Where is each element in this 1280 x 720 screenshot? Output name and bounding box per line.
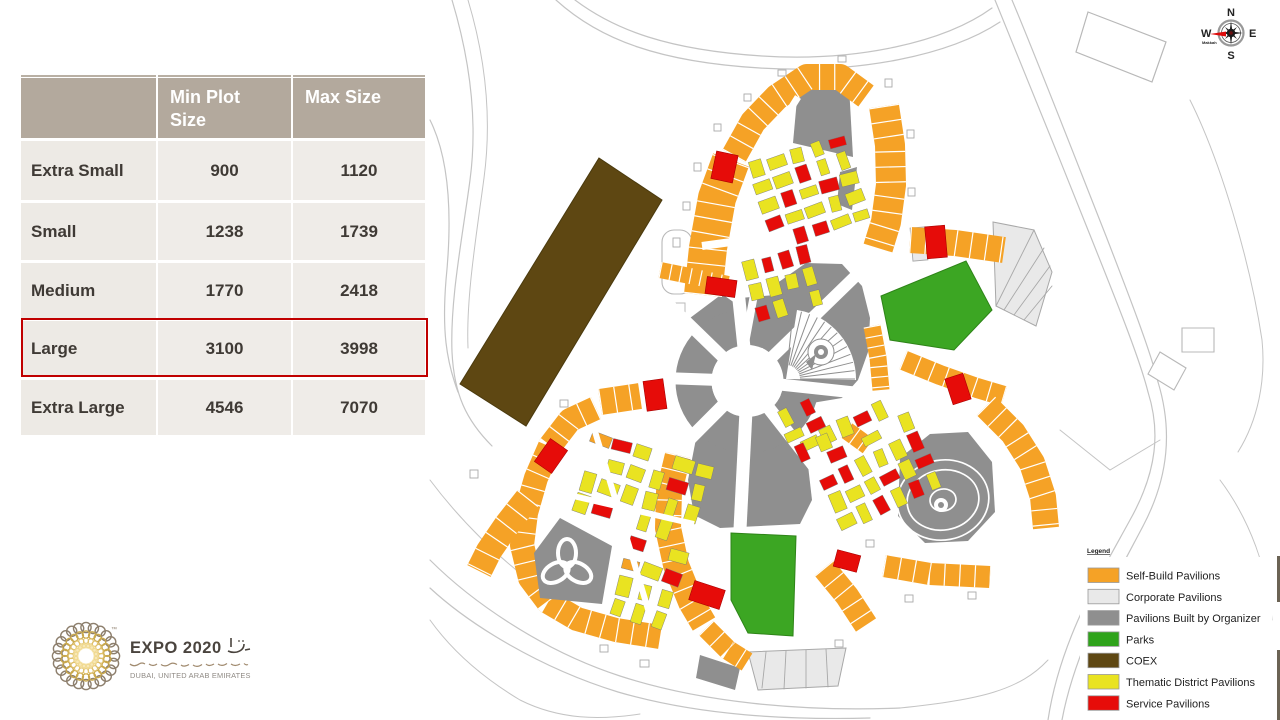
svg-text:S: S <box>1227 50 1234 62</box>
svg-text:N: N <box>1227 7 1235 19</box>
svg-text:Corporate Pavilions: Corporate Pavilions <box>1126 592 1222 604</box>
svg-text:Thematic District Pavilions: Thematic District Pavilions <box>1126 677 1255 689</box>
svg-text:E: E <box>1249 28 1256 40</box>
svg-text:Service Pavilions: Service Pavilions <box>1126 698 1210 710</box>
svg-text:Parks: Parks <box>1126 634 1155 646</box>
svg-text:COEX: COEX <box>1126 656 1158 668</box>
svg-text:W: W <box>1201 28 1212 40</box>
svg-text:Self-Build Pavilions: Self-Build Pavilions <box>1126 571 1221 583</box>
svg-text:Legend: Legend <box>1087 548 1110 555</box>
svg-text:DUBAI, UNITED ARAB EMIRATES: DUBAI, UNITED ARAB EMIRATES <box>130 671 251 680</box>
svg-text:Pavilions Built by Organizer: Pavilions Built by Organizer <box>1126 613 1261 625</box>
svg-text:Makkah: Makkah <box>1202 40 1217 45</box>
svg-text:™: ™ <box>111 626 117 633</box>
svg-text:EXPO 2020: EXPO 2020 <box>130 639 222 657</box>
